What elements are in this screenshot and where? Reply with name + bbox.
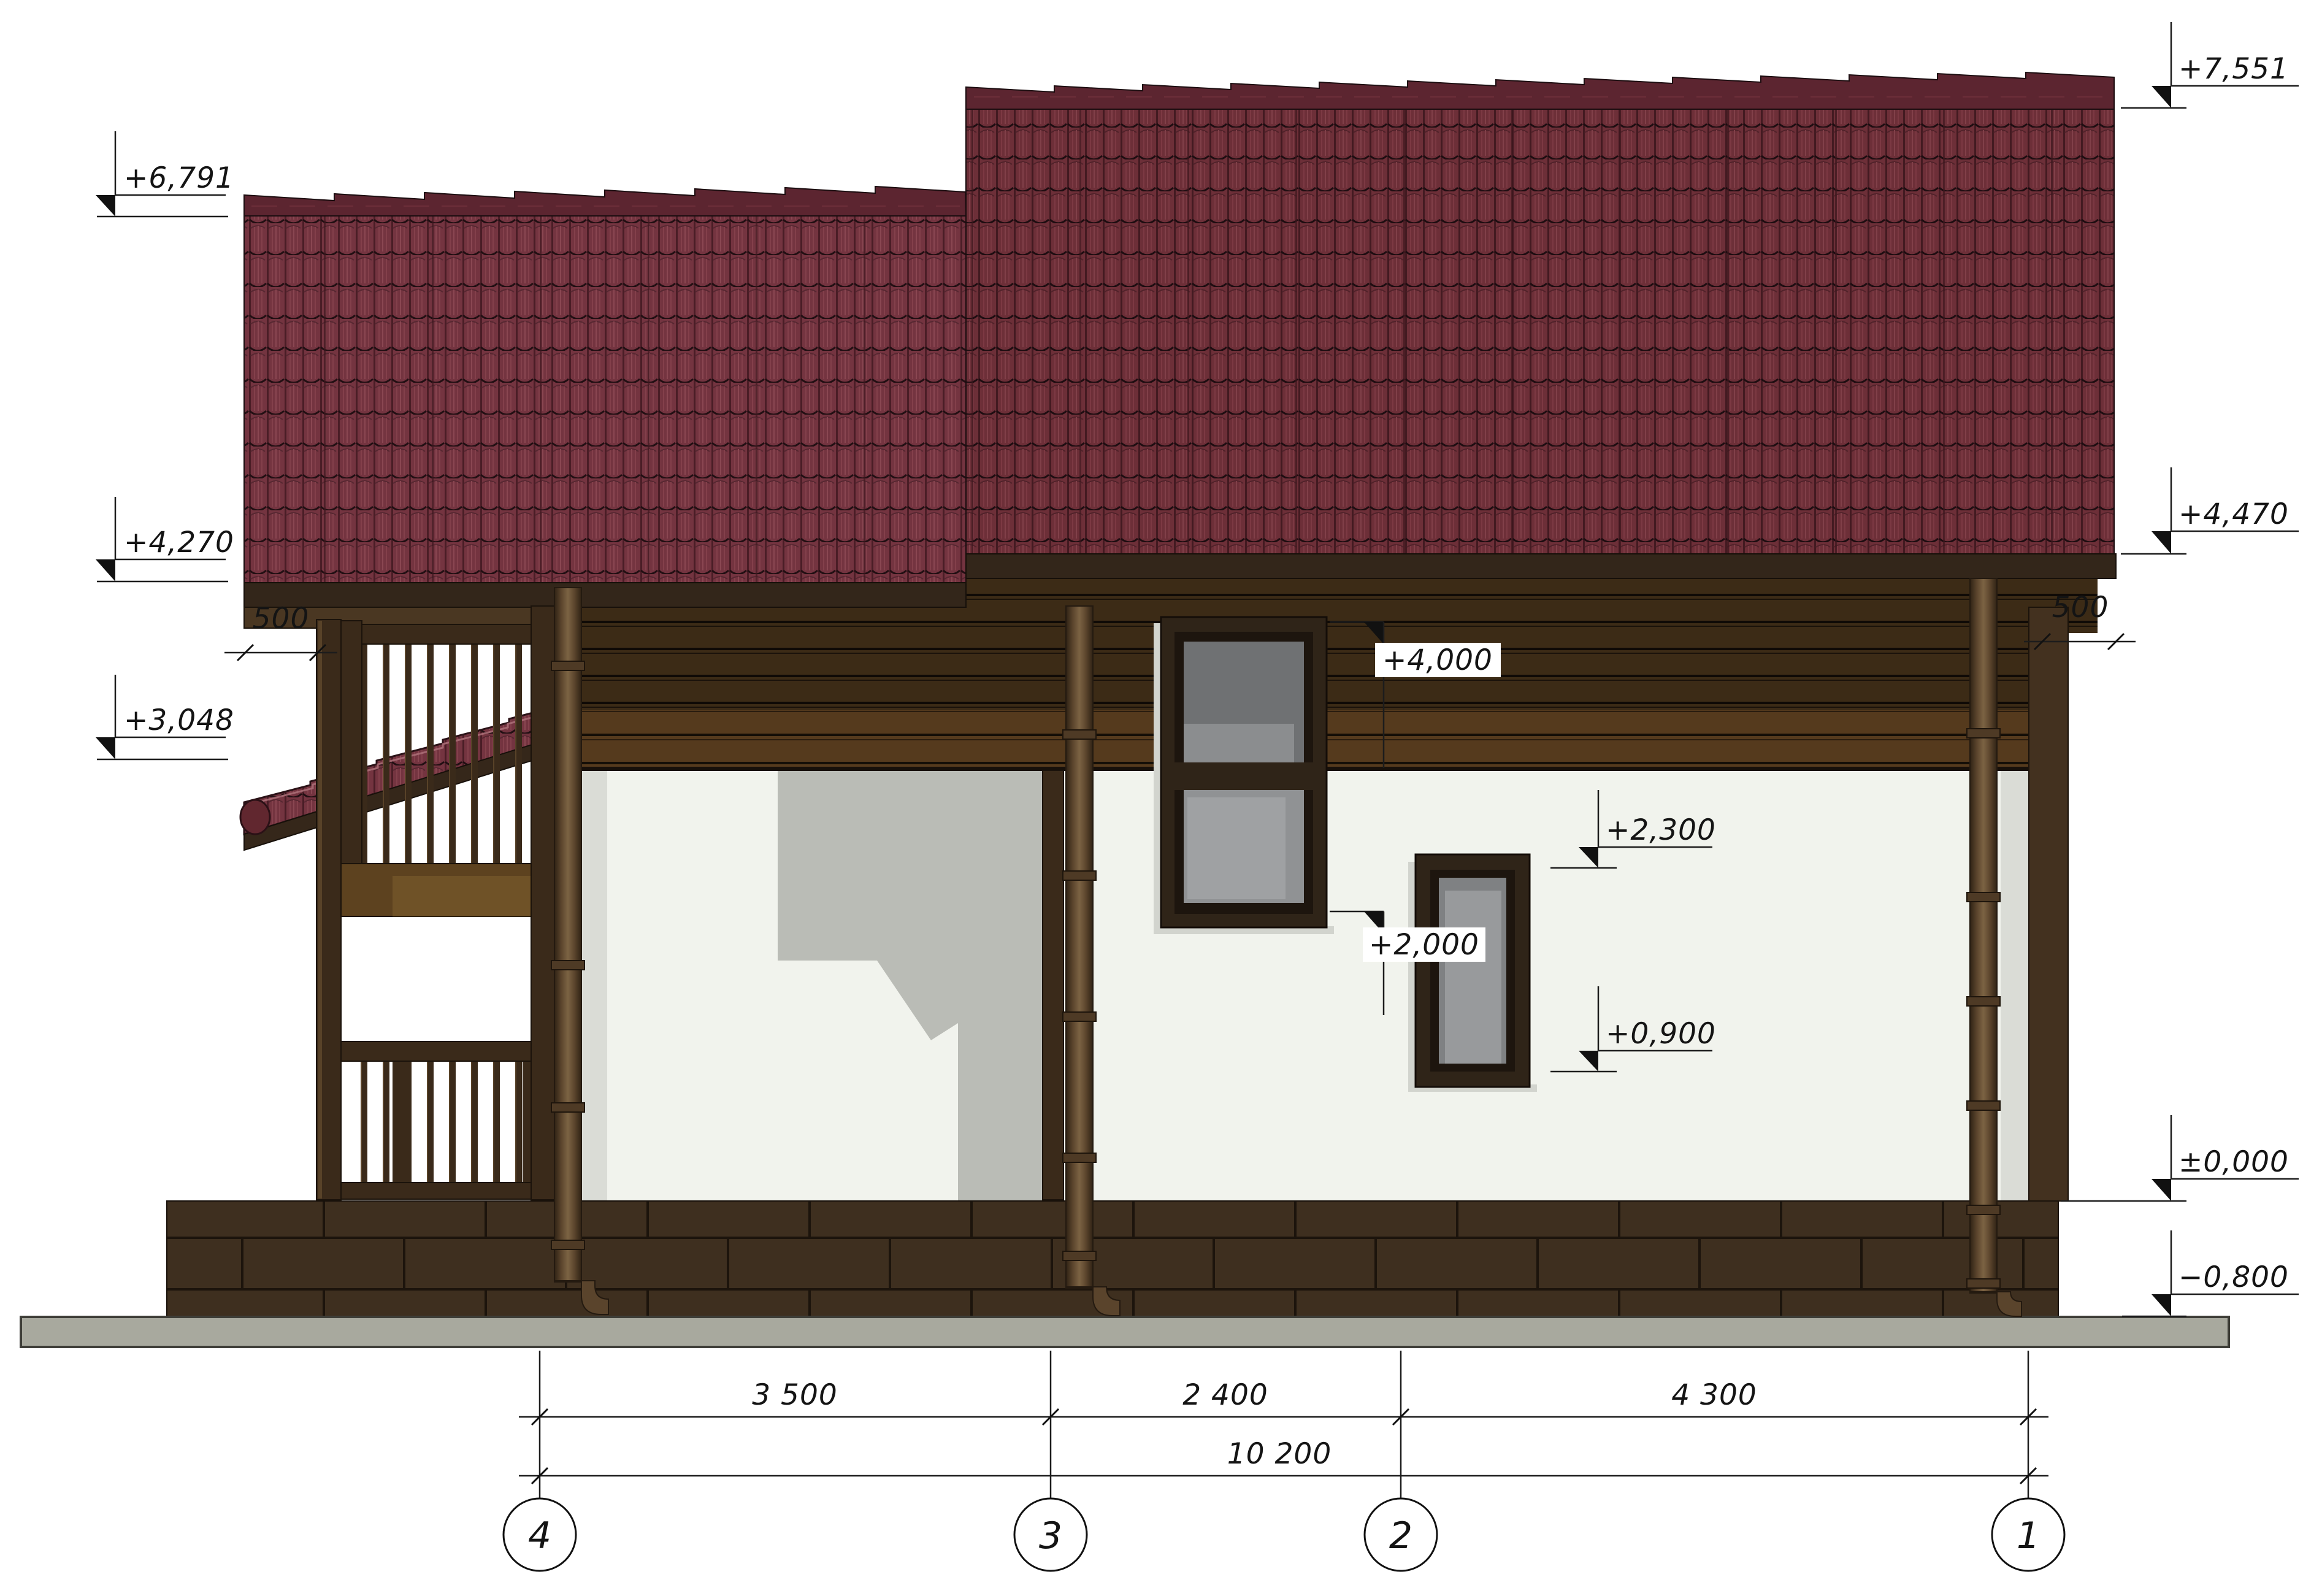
level-text-7551: +7,551 (2178, 52, 2289, 86)
ground-slab (21, 1317, 2229, 1347)
overhang-text-right: 500 (2052, 591, 2109, 624)
balcony-balusters (361, 644, 557, 864)
grid-bubble-2-label: 2 (1389, 1514, 1412, 1557)
grid-bubble-3-label: 3 (1039, 1514, 1062, 1557)
grid-bubbles: 4 3 2 1 (504, 1498, 2064, 1571)
level-text-m0800: −0,800 (2178, 1260, 2289, 1294)
elevation-drawing: +6,791 +4,270 +3,048 +7,551 (0, 0, 2303, 1596)
dimension-lines: 3 500 2 400 4 300 10 200 (519, 1351, 2048, 1498)
wall-corner-shade-right (2001, 767, 2029, 1201)
porch-roof-endcap (240, 800, 270, 834)
level-marker-3048: +3,048 (96, 675, 234, 759)
porch-rail-post-a (393, 1061, 410, 1183)
house-elevation (21, 72, 2229, 1347)
dim-text-3500: 3 500 (752, 1378, 838, 1412)
level-text-4000: +4,000 (1382, 643, 1493, 677)
level-marker-6791: +6,791 (96, 131, 234, 217)
overhang-text-left: 500 (253, 602, 310, 635)
level-marker-m0800: −0,800 (2122, 1230, 2299, 1316)
dim-text-2400: 2 400 (1182, 1378, 1268, 1412)
level-text-4270: +4,270 (124, 526, 234, 559)
roof-right-ridge-caps (966, 72, 2114, 109)
siding-soffit-left (581, 607, 966, 633)
roof-left (244, 186, 966, 607)
roof-left-ridge-caps (244, 186, 966, 216)
level-text-2000: +2,000 (1369, 928, 1479, 962)
window-small (1408, 854, 1537, 1092)
roof-right (966, 72, 2116, 578)
wall-post-grid3 (1043, 770, 1063, 1200)
wall-corner-shade-left (581, 767, 607, 1201)
level-text-0900: +0,900 (1606, 1017, 1716, 1051)
level-marker-0000: ±0,000 (2061, 1115, 2299, 1201)
dim-text-10200: 10 200 (1227, 1437, 1332, 1471)
grid-bubble-4-label: 4 (528, 1514, 551, 1557)
balcony-corner-post (339, 621, 362, 864)
level-text-4470: +4,470 (2178, 497, 2289, 531)
porch (240, 606, 581, 1200)
grid-bubble-1-label: 1 (2017, 1514, 2040, 1557)
level-text-6791: +6,791 (124, 161, 234, 195)
level-marker-4270: +4,270 (96, 497, 234, 581)
level-text-2300: +2,300 (1606, 813, 1716, 847)
window-tall (1154, 617, 1334, 934)
level-marker-4470: +4,470 (2121, 467, 2299, 554)
window-tall-transom (1174, 762, 1313, 790)
level-marker-7551: +7,551 (2121, 22, 2299, 108)
siding-soffit-right (966, 578, 2098, 633)
level-text-3048: +3,048 (124, 704, 234, 737)
roof-left-fascia (244, 583, 966, 607)
roof-right-fascia (966, 554, 2116, 578)
level-text-0000: ±0,000 (2178, 1145, 2289, 1179)
corner-trim-right (2029, 607, 2068, 1201)
dim-text-4300: 4 300 (1671, 1378, 1757, 1412)
